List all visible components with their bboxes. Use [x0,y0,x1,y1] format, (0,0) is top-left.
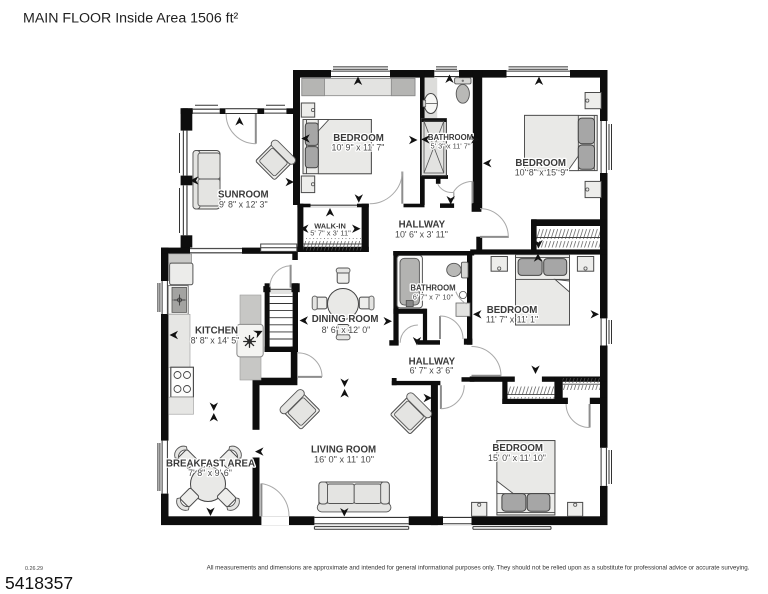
svg-text:10' 6" x 3' 11": 10' 6" x 3' 11" [395,229,448,239]
svg-text:15' 0" x 11' 10": 15' 0" x 11' 10" [488,453,546,463]
svg-text:MAIN FLOOR Inside Area 1506 ft: MAIN FLOOR Inside Area 1506 ft² [23,11,239,27]
svg-text:9' 8" x 12' 3": 9' 8" x 12' 3" [219,199,268,209]
svg-text:6' 7" x 7' 10": 6' 7" x 7' 10" [413,293,454,302]
svg-text:All measurements and dimension: All measurements and dimensions are appr… [207,565,750,572]
svg-text:BATHROOM: BATHROOM [410,284,455,293]
svg-text:5418357: 5418357 [5,573,73,593]
svg-text:16' 0" x 11' 10": 16' 0" x 11' 10" [314,455,374,465]
svg-text:11' 7" x 11' 1": 11' 7" x 11' 1" [486,314,538,324]
svg-text:10' 8" x 15' 9": 10' 8" x 15' 9" [515,167,569,177]
svg-text:7' 8" x 9' 6": 7' 8" x 9' 6" [188,468,232,478]
svg-text:8' 8" x 14' 5": 8' 8" x 14' 5" [191,335,240,345]
svg-text:6' 7" x 3' 6": 6' 7" x 3' 6" [410,366,454,376]
svg-text:0.26.29: 0.26.29 [25,566,43,572]
svg-text:5' 7" x 3' 11": 5' 7" x 3' 11" [310,229,351,238]
svg-text:DINING ROOM: DINING ROOM [312,314,379,325]
svg-text:8' 6" x 12' 0": 8' 6" x 12' 0" [322,325,371,335]
svg-text:5' 3" x 11' 7": 5' 3" x 11' 7" [431,142,471,151]
svg-text:10' 9" x 11' 7": 10' 9" x 11' 7" [332,143,385,153]
